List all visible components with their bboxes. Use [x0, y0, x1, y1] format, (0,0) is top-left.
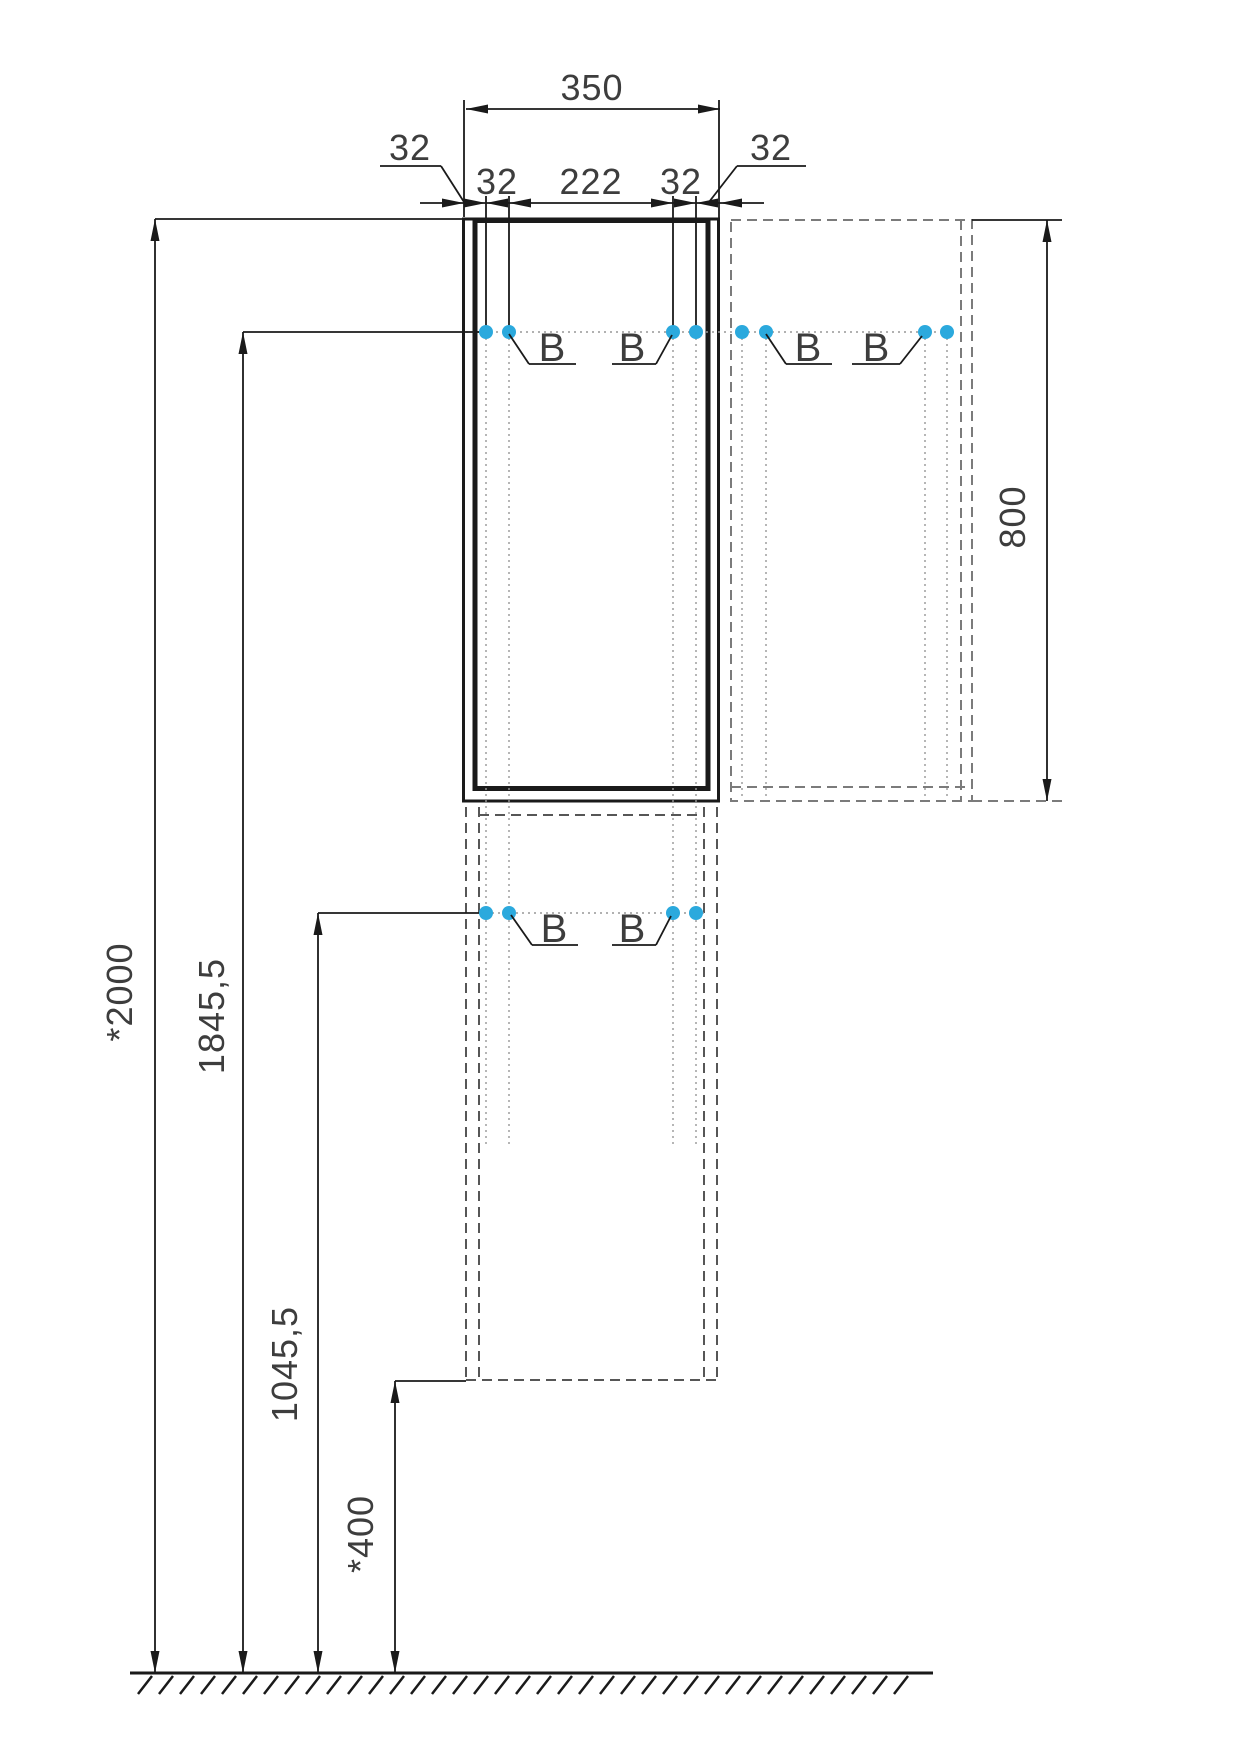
ground-hatch-stroke [768, 1676, 782, 1694]
dimension-row-32-222: 32 222 32 32 32 [380, 127, 806, 326]
dim-1845-label: 1845,5 [191, 958, 232, 1074]
side-view-outline [731, 220, 972, 801]
mounting-point-dot [735, 325, 749, 339]
dimension-800: 800 [972, 220, 1062, 801]
mounting-point-dot [759, 325, 773, 339]
dimension-2000: *2000 [99, 219, 462, 1673]
ground-hatch-stroke [831, 1676, 845, 1694]
dim-32-inner-left-label: 32 [476, 161, 518, 202]
mounting-point-dot [689, 325, 703, 339]
ground-hatch-stroke [138, 1676, 152, 1694]
dimension-1845-5: 1845,5 [191, 332, 480, 1673]
ground-hatch-stroke [642, 1676, 656, 1694]
ground-hatch-stroke [159, 1676, 173, 1694]
technical-drawing-page: 350 32 222 32 32 32 [0, 0, 1240, 1755]
dim-32-leader-right-label: 32 [750, 127, 792, 168]
ground-hatch-stroke [180, 1676, 194, 1694]
callout-b-upper-3: B [766, 326, 832, 370]
callout-b-label: B [539, 326, 566, 370]
dim-1045-label: 1045,5 [264, 1306, 305, 1422]
ground-hatch-stroke [810, 1676, 824, 1694]
ground-hatch-stroke [852, 1676, 866, 1694]
ground-hatch-stroke [663, 1676, 677, 1694]
dim-800-label: 800 [992, 485, 1033, 548]
dimension-400: *400 [340, 1381, 466, 1673]
ground-hatch-stroke [222, 1676, 236, 1694]
ground-hatch-stroke [201, 1676, 215, 1694]
mounting-point-dot [479, 325, 493, 339]
callout-b-lower-1: B [511, 907, 578, 951]
front-view-outer-frame [464, 219, 719, 801]
callout-b-upper-1: B [509, 326, 576, 370]
mounting-point-dot [918, 325, 932, 339]
front-view-upper-cabinet [464, 219, 719, 801]
ground-hatch-stroke [873, 1676, 887, 1694]
ground-hatch-stroke [306, 1676, 320, 1694]
mounting-point-dot [666, 906, 680, 920]
ground-hatch-stroke [453, 1676, 467, 1694]
ground-hatch-stroke [579, 1676, 593, 1694]
ground-hatch-stroke [747, 1676, 761, 1694]
ground-hatch-stroke [621, 1676, 635, 1694]
ground-hatch-stroke [369, 1676, 383, 1694]
ground-hatch-stroke [894, 1676, 908, 1694]
callout-b-label: B [619, 326, 646, 370]
ground-hatch-stroke [348, 1676, 362, 1694]
callout-b-label: B [619, 907, 646, 951]
cabinet-dimension-drawing: 350 32 222 32 32 32 [0, 0, 1240, 1755]
dim-2000-label: *2000 [99, 942, 140, 1041]
dim-32-leader-left-label: 32 [389, 127, 431, 168]
callout-b-upper-2: B [612, 326, 672, 370]
ground-hatch-stroke [432, 1676, 446, 1694]
leader-32-left: 32 [380, 127, 464, 202]
mounting-point-dot [666, 325, 680, 339]
ground-hatch-stroke [726, 1676, 740, 1694]
ground-hatch-stroke [789, 1676, 803, 1694]
mounting-point-dot [940, 325, 954, 339]
ground-hatch-stroke [600, 1676, 614, 1694]
leader-32-right: 32 [709, 127, 806, 202]
ground-hatch-stroke [495, 1676, 509, 1694]
mounting-point-dot [479, 906, 493, 920]
ground-hatch-stroke [243, 1676, 257, 1694]
ground-line [130, 1673, 933, 1694]
ground-hatch [138, 1676, 908, 1694]
ground-hatch-stroke [474, 1676, 488, 1694]
hole-axis-lines [466, 332, 956, 1148]
callout-b-label: B [795, 326, 822, 370]
lower-cabinet-dashed [466, 807, 717, 1380]
ground-hatch-stroke [537, 1676, 551, 1694]
ground-hatch-stroke [327, 1676, 341, 1694]
dim-222-label: 222 [559, 161, 622, 202]
ground-hatch-stroke [285, 1676, 299, 1694]
mounting-point-dot [502, 325, 516, 339]
ground-hatch-stroke [705, 1676, 719, 1694]
callout-b-label: B [863, 326, 890, 370]
ground-hatch-stroke [684, 1676, 698, 1694]
ground-hatch-stroke [264, 1676, 278, 1694]
ground-hatch-stroke [558, 1676, 572, 1694]
callout-b-label: B [541, 907, 568, 951]
mounting-point-dot [689, 906, 703, 920]
dim-400-label: *400 [340, 1495, 381, 1573]
ground-hatch-stroke [516, 1676, 530, 1694]
ground-hatch-stroke [411, 1676, 425, 1694]
dim-32-inner-right-label: 32 [660, 161, 702, 202]
dim-350-label: 350 [560, 67, 623, 108]
callout-b-lower-2: B [612, 907, 671, 951]
ground-hatch-stroke [390, 1676, 404, 1694]
